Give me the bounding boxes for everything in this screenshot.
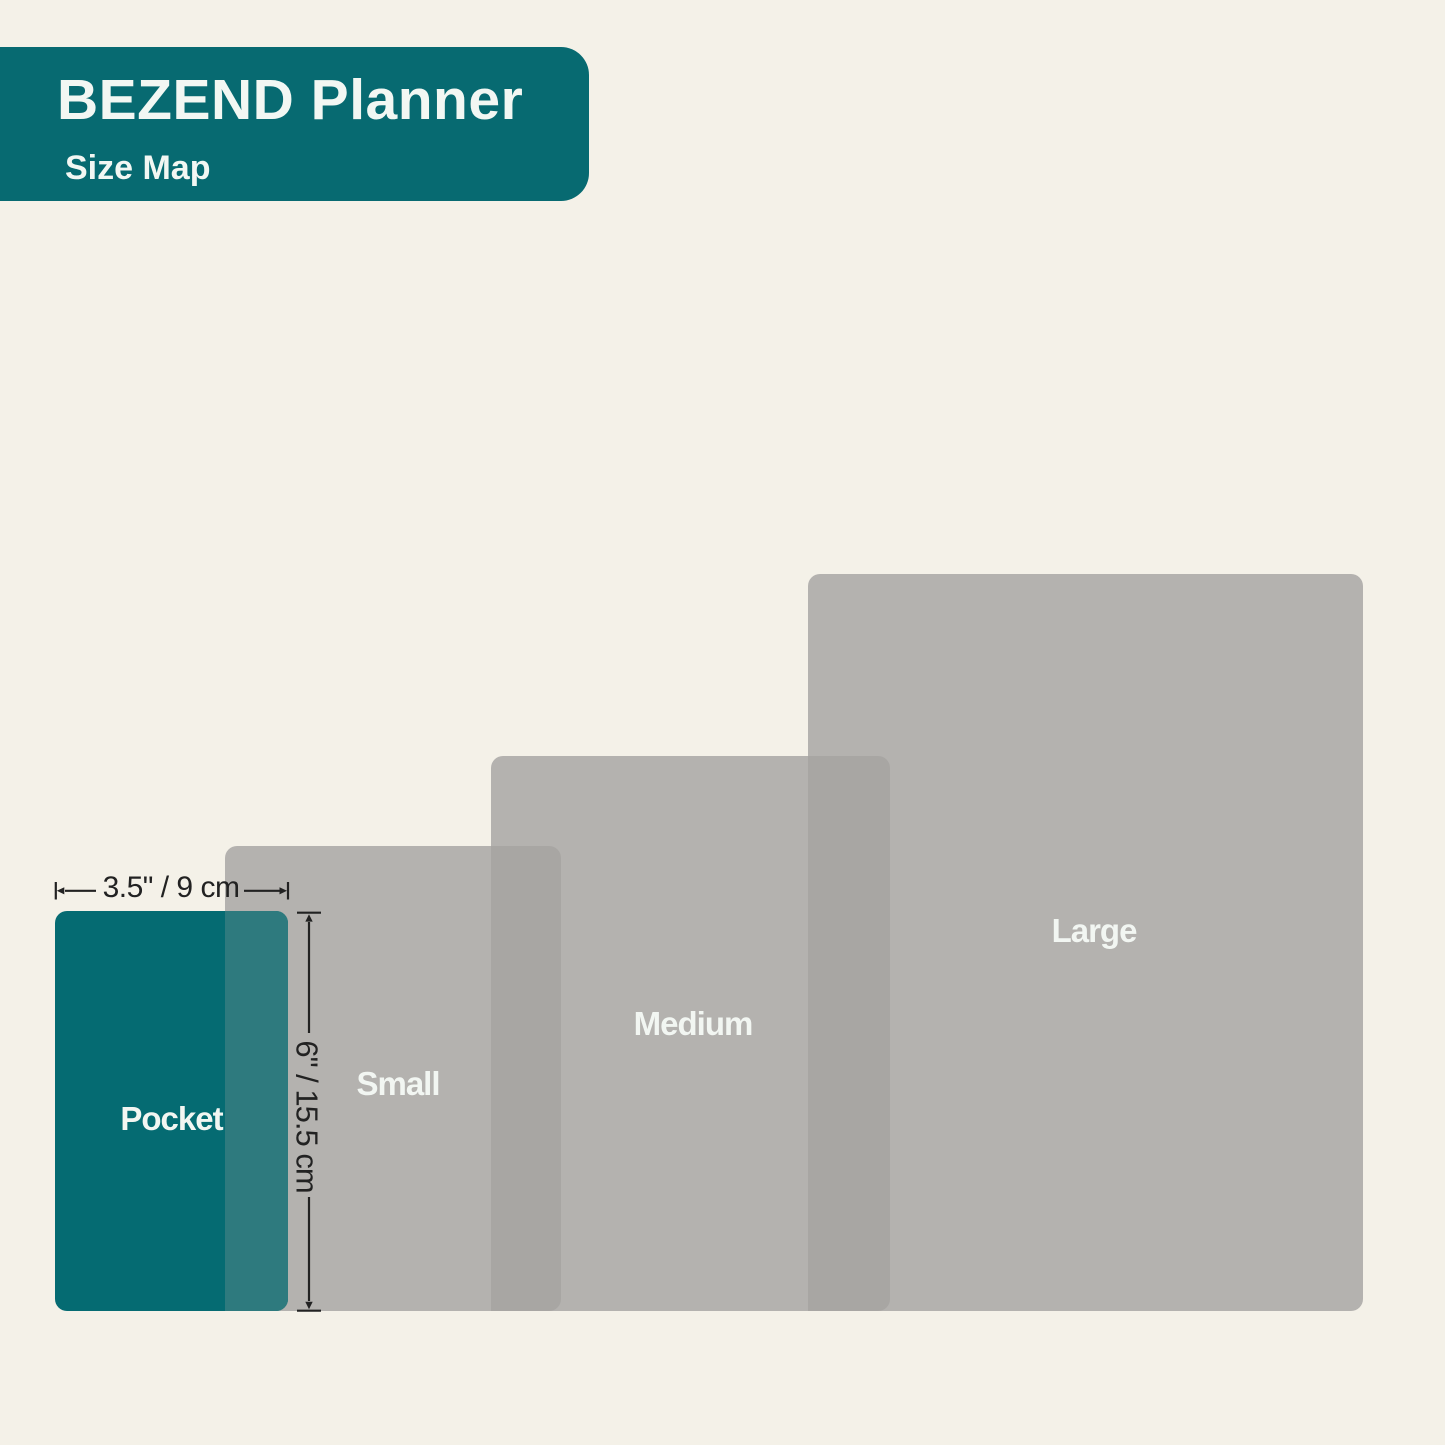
svg-text:6" / 15.5 cm: 6" / 15.5 cm <box>290 1040 325 1192</box>
svg-text:3.5" / 9 cm: 3.5" / 9 cm <box>103 871 240 904</box>
